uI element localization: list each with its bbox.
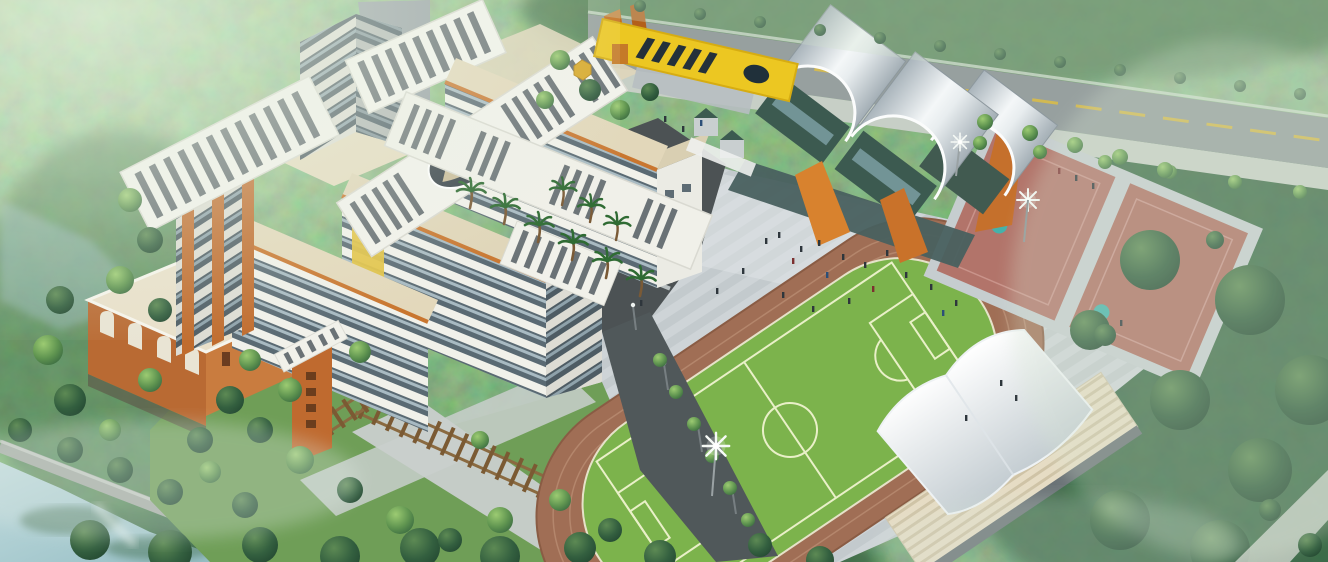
person [872,286,874,292]
person [864,262,866,268]
person [942,310,944,316]
tree [748,533,772,557]
tree [723,481,737,495]
tree [278,378,302,402]
tree [741,513,755,527]
person [955,300,957,306]
person [782,292,784,298]
person [930,284,932,290]
tree [687,417,701,431]
person [1015,395,1017,401]
person [700,120,702,126]
tree [386,506,414,534]
tree [977,114,993,130]
tree [1022,125,1038,141]
person [965,415,967,421]
tree [641,83,659,101]
person [682,126,684,132]
person [886,250,888,256]
person [778,232,780,238]
light-pole-starburst [951,133,969,151]
tree [438,528,462,552]
tree [487,507,513,533]
tree [669,385,683,399]
person [664,116,666,122]
tree [653,353,667,367]
person [640,300,642,306]
haze-top-left [0,0,620,340]
person [905,272,907,278]
tree [54,384,86,416]
tree [138,368,162,392]
person [742,268,744,274]
tree [239,349,261,371]
person [1000,380,1002,386]
person [812,306,814,312]
person [818,240,820,246]
light-pole-starburst [703,433,729,459]
tree [1033,145,1047,159]
person [800,246,802,252]
person [826,272,828,278]
person [842,254,844,260]
person [765,238,767,244]
person [792,258,794,264]
tree [216,386,244,414]
campus-rendering: School Campus Aerial Rendering [0,0,1328,562]
tree [549,489,571,511]
tree [973,136,987,150]
tree [471,431,489,449]
person [848,298,850,304]
person [716,288,718,294]
tree [598,518,622,542]
tree [349,341,371,363]
